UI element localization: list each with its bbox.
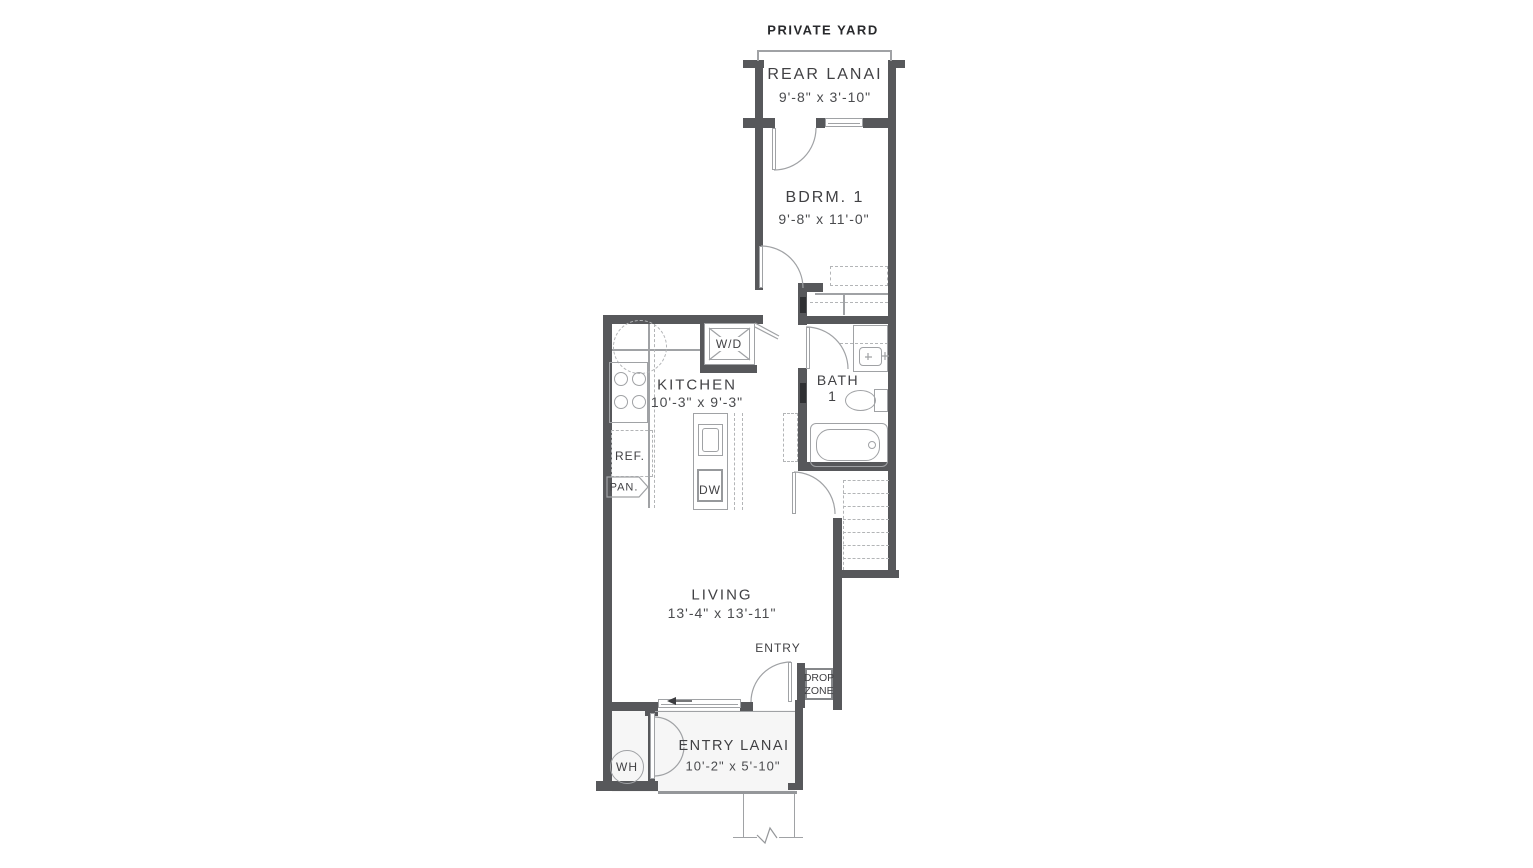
door-jamb: [800, 297, 806, 313]
burner: [632, 395, 646, 409]
yard-edge: [757, 50, 759, 61]
living-dims: 13'-4" x 13'-11": [668, 606, 777, 620]
entry-lanai-name: ENTRY LANAI: [678, 739, 789, 754]
wall: [795, 700, 803, 790]
stair-tread: [843, 493, 889, 494]
entry-label: ENTRY: [755, 642, 800, 654]
private-yard-label: PRIVATE YARD: [767, 24, 878, 37]
door-jamb: [800, 383, 806, 403]
wall: [740, 702, 753, 711]
lanai-edge: [655, 711, 795, 712]
range: [609, 362, 648, 423]
stair-tread: [843, 545, 889, 546]
bedroom-door-swing: [761, 246, 803, 288]
window-glass-line: [661, 704, 738, 705]
window-glass-line: [828, 123, 860, 124]
bedroom-window: [825, 118, 863, 127]
burner: [632, 372, 646, 386]
entry-door-leaf: [788, 662, 792, 702]
island-overhang-line: [734, 413, 735, 510]
bath-door-swing: [806, 327, 848, 369]
bed-outline: [830, 266, 888, 286]
bath1-name: BATH: [817, 373, 859, 387]
walkway-edge: [794, 794, 795, 838]
stair-closet-door-swing: [794, 472, 835, 514]
wall: [833, 570, 899, 578]
yard-edge: [757, 50, 892, 52]
bedroom1-dims: 9'-8" x 11'-0": [778, 212, 869, 226]
wall: [888, 60, 896, 577]
burner: [614, 395, 628, 409]
kitchen-dims: 10'-3" x 9'-3": [651, 395, 743, 409]
drop-zone-label-line1: DROP: [804, 673, 834, 684]
rear-lanai-door-swing: [774, 128, 816, 170]
bedroom1-name: BDRM. 1: [786, 190, 865, 206]
walkway-edge: [733, 837, 803, 838]
stair-tread: [843, 558, 889, 559]
washer-dryer-label: W/D: [714, 337, 744, 351]
wall: [833, 518, 842, 578]
rear-lanai-dims: 9'-8" x 3'-10": [779, 90, 871, 104]
living-name: LIVING: [691, 588, 752, 603]
kitchen-name: KITCHEN: [657, 378, 737, 393]
lanai-edge: [658, 791, 797, 794]
burner: [614, 372, 628, 386]
wall: [816, 118, 825, 128]
living-slider-window: [658, 699, 741, 708]
linen-cabinet-outline: [783, 413, 798, 462]
bath-door-leaf: [806, 327, 810, 369]
closet-door-track: [650, 713, 655, 779]
closet-divider: [843, 293, 845, 315]
stair-tread: [843, 532, 889, 533]
stair-closet-door-leaf: [792, 472, 796, 514]
drop-zone-label-line2: ZONE: [804, 686, 833, 697]
wall: [788, 783, 803, 790]
closet-rod: [810, 302, 888, 303]
closet-front-line: [815, 293, 888, 295]
refrigerator-label: REF.: [615, 450, 645, 462]
island-overhang-line: [742, 413, 743, 510]
stair-tread: [843, 519, 889, 520]
bath1-number: 1: [828, 389, 838, 403]
stair-tread: [843, 506, 889, 507]
floor-plan: PRIVATE YARD REAR LANAI 9'-8" x 3'-10" B…: [0, 0, 1533, 868]
toilet-bowl: [845, 390, 876, 411]
dishwasher-label: DW: [699, 484, 721, 496]
rear-lanai-name: REAR LANAI: [767, 67, 882, 83]
entry-lanai-dims: 10'-2" x 5'-10": [686, 760, 781, 773]
toilet-tank: [874, 389, 888, 412]
pantry-label: PAN.: [610, 483, 639, 494]
entry-door-swing: [751, 662, 791, 702]
bedroom-door-leaf: [759, 246, 763, 288]
walkway-break-mark: [757, 828, 779, 843]
wall: [833, 578, 842, 710]
stair-tread: [843, 480, 889, 481]
island-sink-basin: [702, 428, 719, 452]
walkway-edge: [743, 794, 744, 838]
washer-dryer-door-leaf: [755, 323, 779, 339]
water-heater-label: WH: [616, 761, 638, 773]
vanity-sink: [859, 347, 882, 366]
tub-drain: [868, 441, 876, 449]
wall: [700, 365, 757, 373]
rear-lanai-door-leaf: [772, 128, 776, 170]
yard-edge: [890, 50, 892, 61]
wall: [806, 316, 888, 324]
